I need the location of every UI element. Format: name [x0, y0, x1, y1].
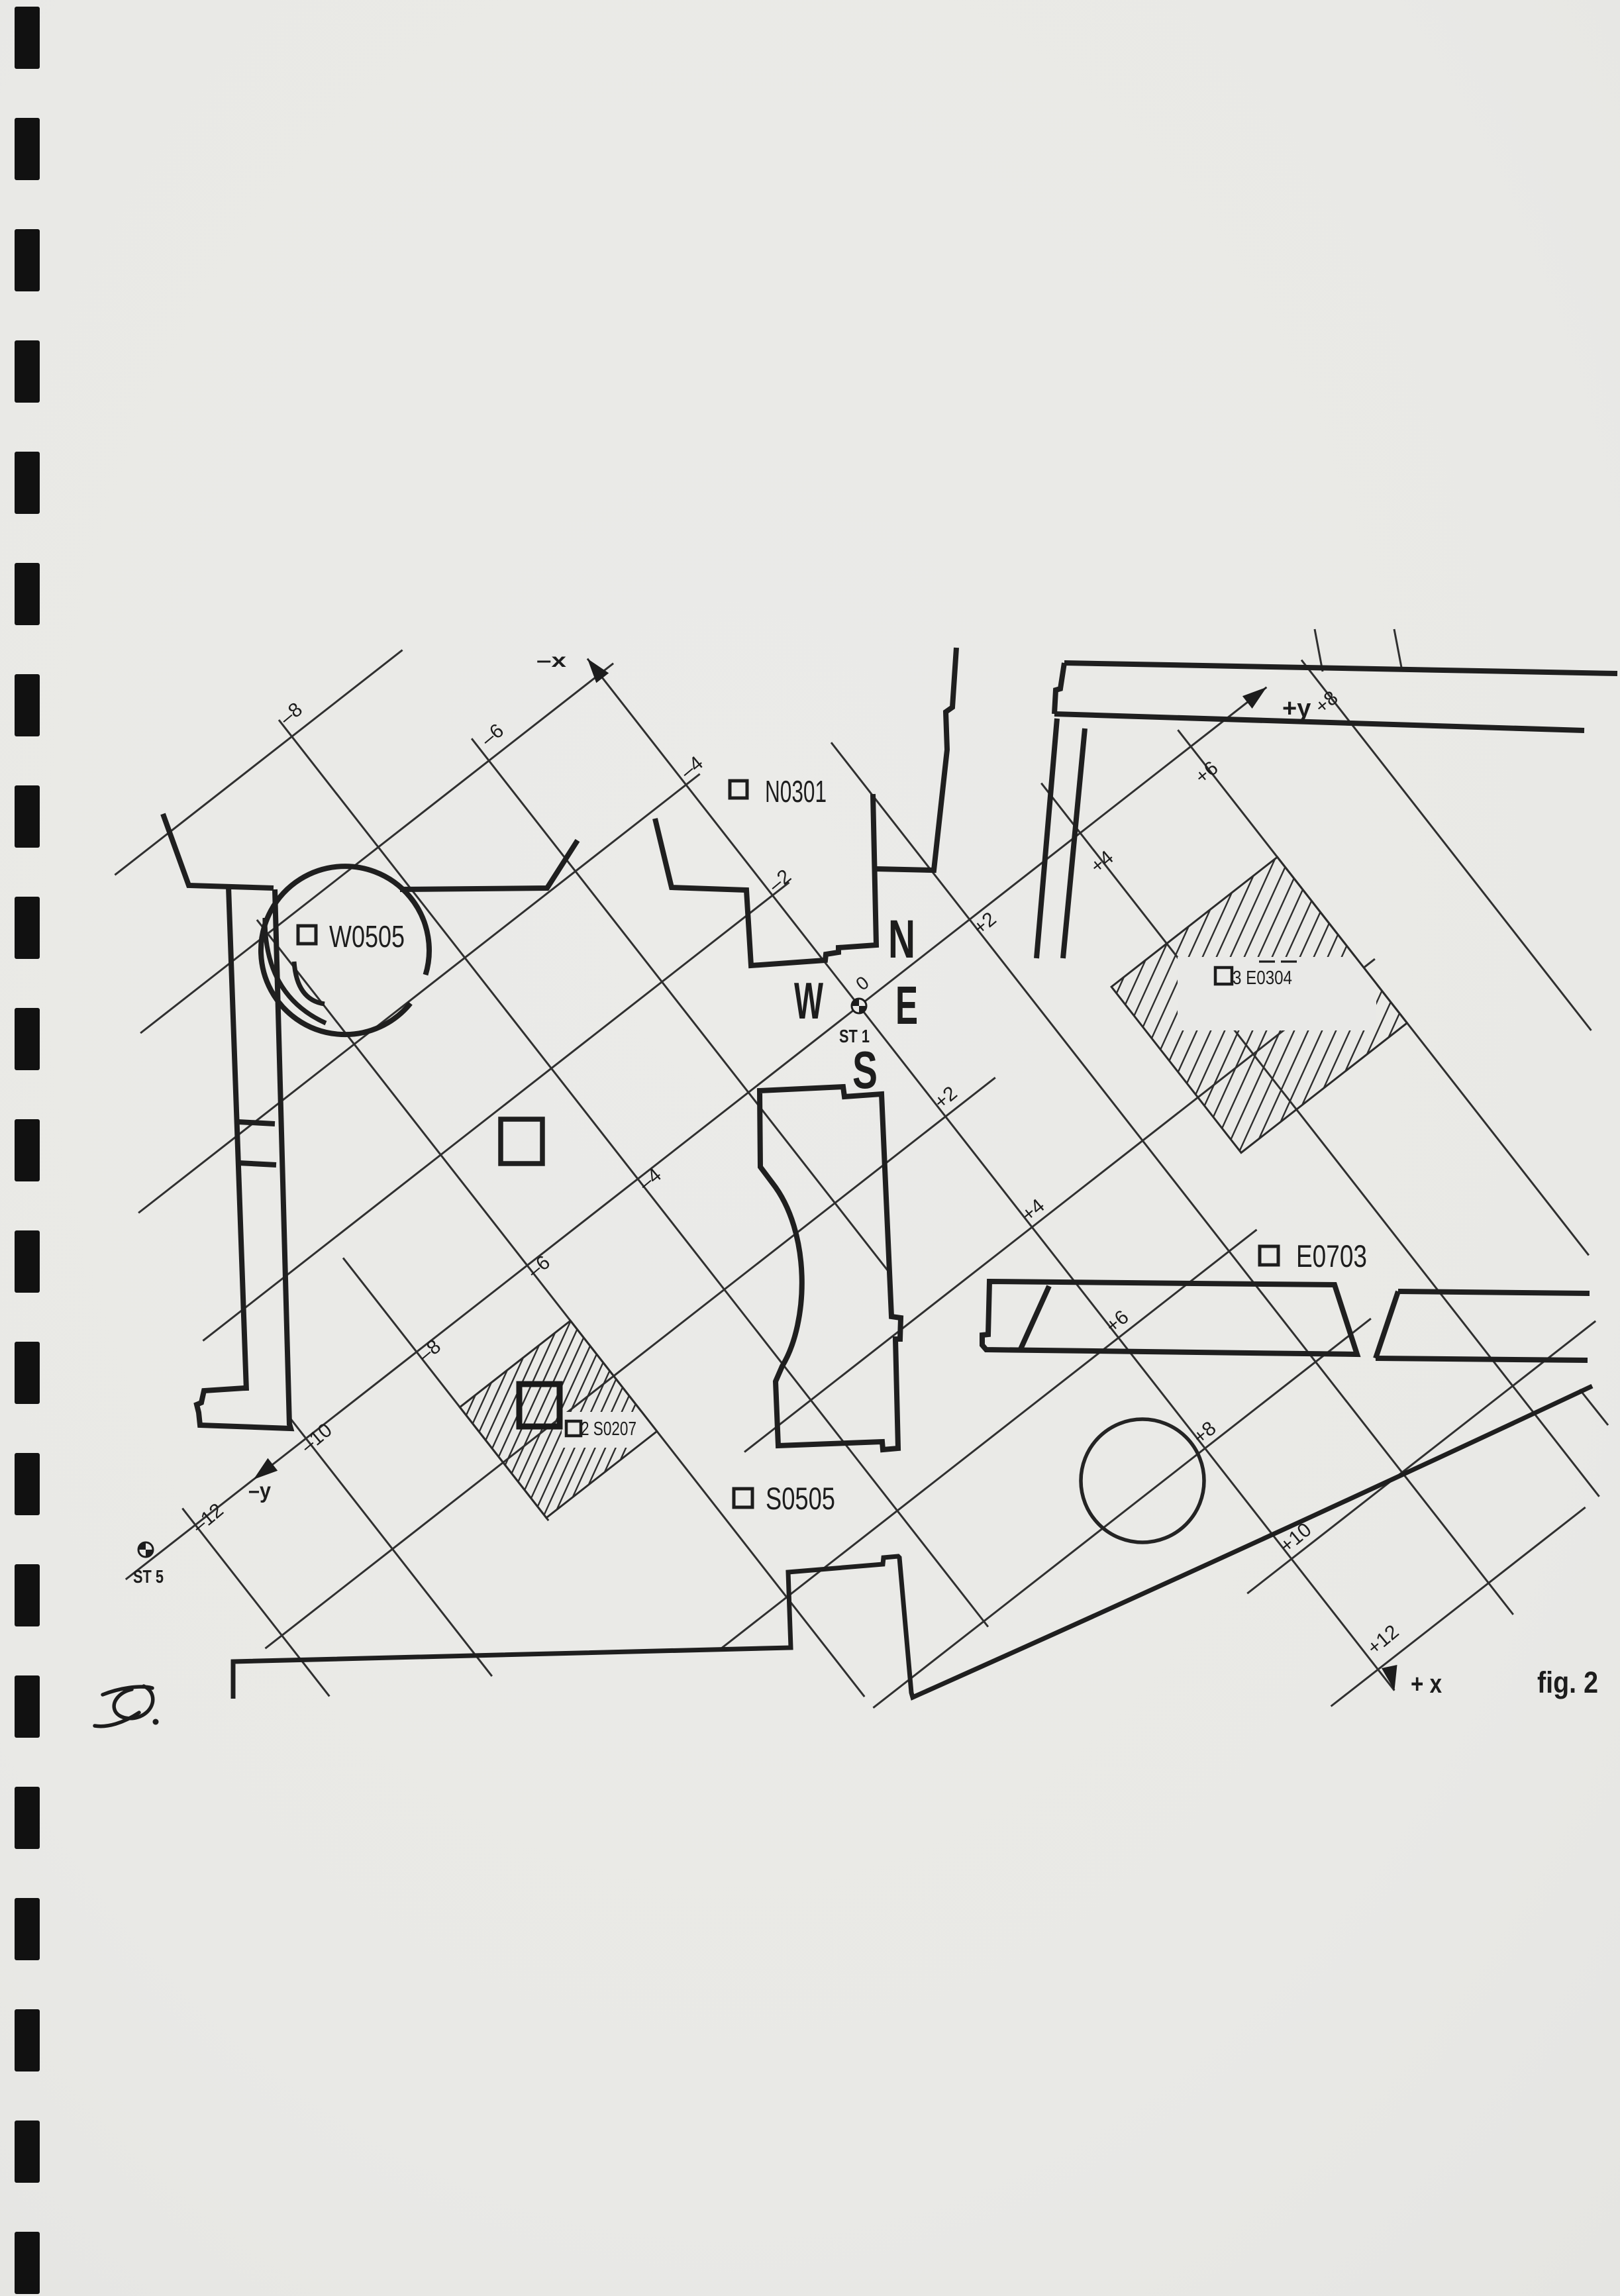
svg-text:fig. 2: fig. 2 — [1537, 1666, 1598, 1699]
svg-text:W: W — [794, 972, 823, 1030]
svg-text:+y: +y — [1282, 695, 1311, 723]
svg-text:–x: –x — [536, 650, 566, 672]
svg-text:E0703: E0703 — [1296, 1238, 1367, 1273]
svg-text:N: N — [888, 909, 915, 970]
svg-text:S0505: S0505 — [766, 1481, 835, 1516]
svg-text:–y: –y — [248, 1478, 272, 1503]
svg-text:3 E0304: 3 E0304 — [1233, 968, 1292, 989]
svg-text:S: S — [852, 1040, 878, 1099]
svg-text:E: E — [895, 975, 918, 1036]
svg-text:W0505: W0505 — [329, 919, 405, 954]
svg-text:2 S0207: 2 S0207 — [581, 1419, 636, 1440]
svg-text:N0301: N0301 — [765, 774, 827, 809]
svg-text:ST 5: ST 5 — [133, 1566, 164, 1587]
svg-text:+ x: + x — [1411, 1670, 1442, 1699]
svg-text:ST 1: ST 1 — [839, 1026, 870, 1046]
